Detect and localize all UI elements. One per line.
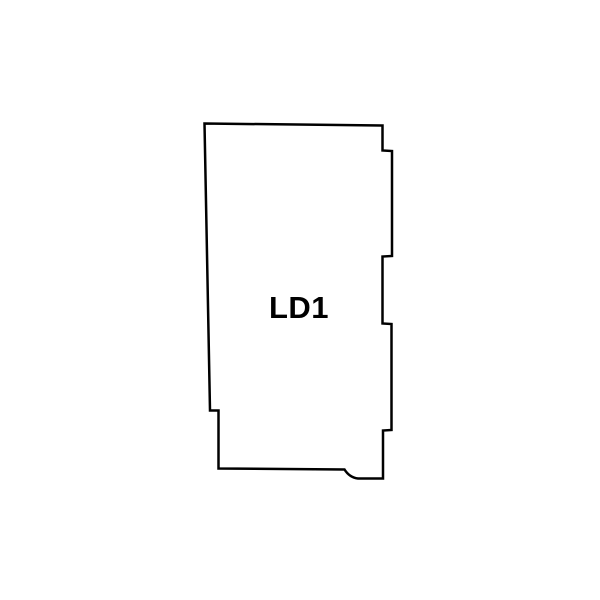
floorplan-svg: LD1	[0, 0, 600, 600]
unit-label: LD1	[269, 290, 329, 325]
diagram-canvas: LD1	[0, 0, 600, 600]
